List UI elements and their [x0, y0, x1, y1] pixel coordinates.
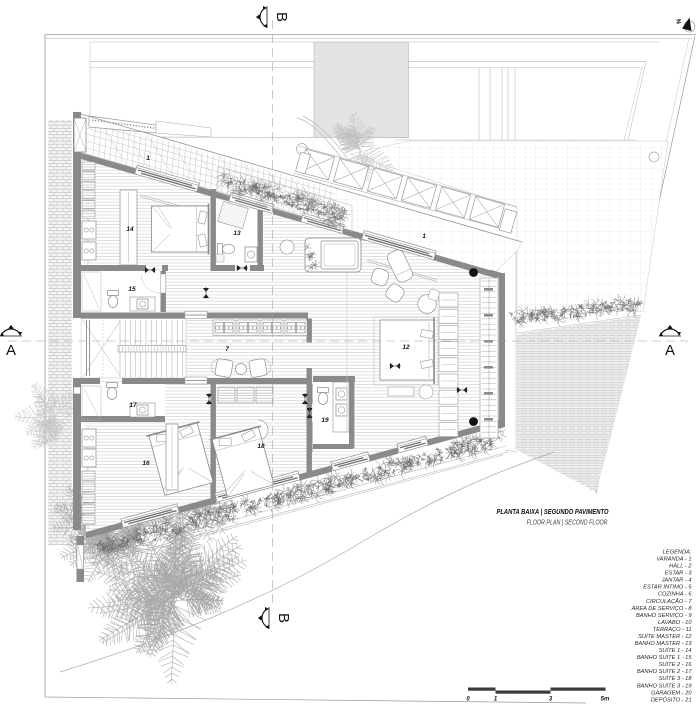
svg-text:B: B [275, 613, 292, 623]
svg-text:SUÍTE 2 - 16: SUÍTE 2 - 16 [659, 661, 693, 668]
svg-text:16: 16 [142, 460, 150, 467]
svg-text:BANHO SERVIÇO - 9: BANHO SERVIÇO - 9 [636, 613, 692, 619]
svg-text:1: 1 [146, 155, 150, 162]
svg-text:ÁREA DE SERVIÇO - 8: ÁREA DE SERVIÇO - 8 [630, 605, 692, 612]
svg-text:BANHO SUÍTE 2 - 17: BANHO SUÍTE 2 - 17 [637, 668, 693, 675]
svg-text:GARAGEM - 20: GARAGEM - 20 [651, 690, 692, 696]
svg-text:13: 13 [233, 230, 241, 237]
svg-text:7: 7 [225, 346, 229, 353]
svg-text:12: 12 [402, 344, 410, 351]
svg-text:HALL - 2: HALL - 2 [669, 564, 692, 570]
svg-text:17: 17 [129, 402, 137, 409]
svg-text:14: 14 [126, 226, 134, 233]
svg-text:BANHO SUÍTE 3 - 19: BANHO SUÍTE 3 - 19 [637, 682, 693, 689]
svg-text:TERRAÇO - 11: TERRAÇO - 11 [653, 627, 692, 633]
svg-text:SUÍTE 1 - 14: SUÍTE 1 - 14 [659, 647, 692, 654]
svg-text:LAVABO - 10: LAVABO - 10 [658, 620, 692, 626]
svg-text:COZINHA - 6: COZINHA - 6 [658, 592, 692, 598]
svg-text:BANHO MASTER - 13: BANHO MASTER - 13 [635, 641, 693, 647]
svg-text:DEPÓSITO - 21: DEPÓSITO - 21 [651, 696, 692, 703]
svg-text:B: B [273, 12, 290, 22]
svg-text:19: 19 [321, 417, 329, 424]
svg-text:5m: 5m [601, 697, 610, 703]
svg-text:18: 18 [257, 443, 265, 450]
svg-text:FLOOR PLAN | SECOND FLOOR: FLOOR PLAN | SECOND FLOOR [527, 518, 608, 527]
svg-text:JANTAR - 4: JANTAR - 4 [661, 578, 692, 584]
svg-text:CIRCULAÇÃO - 7: CIRCULAÇÃO - 7 [646, 598, 692, 605]
svg-text:BANHO SUÍTE 1 - 15: BANHO SUÍTE 1 - 15 [637, 654, 693, 661]
svg-text:VARANDA - 1: VARANDA - 1 [656, 557, 691, 563]
svg-text:ESTAR - 3: ESTAR - 3 [665, 571, 693, 577]
svg-text:A: A [6, 342, 16, 359]
svg-text:SUÍTE 3 - 18: SUÍTE 3 - 18 [659, 675, 693, 682]
svg-text:15: 15 [128, 286, 136, 293]
svg-text:A: A [665, 342, 675, 359]
svg-text:SUÍTE MASTER - 12: SUÍTE MASTER - 12 [638, 633, 692, 640]
svg-text:1: 1 [422, 233, 426, 240]
svg-text:LEGENDA:: LEGENDA: [663, 550, 692, 556]
svg-text:ESTAR ÍNTIMO - 5: ESTAR ÍNTIMO - 5 [643, 584, 692, 591]
svg-text:PLANTA BAIXA | SEGUNDO PAVIMEN: PLANTA BAIXA | SEGUNDO PAVIMENTO [497, 507, 609, 516]
